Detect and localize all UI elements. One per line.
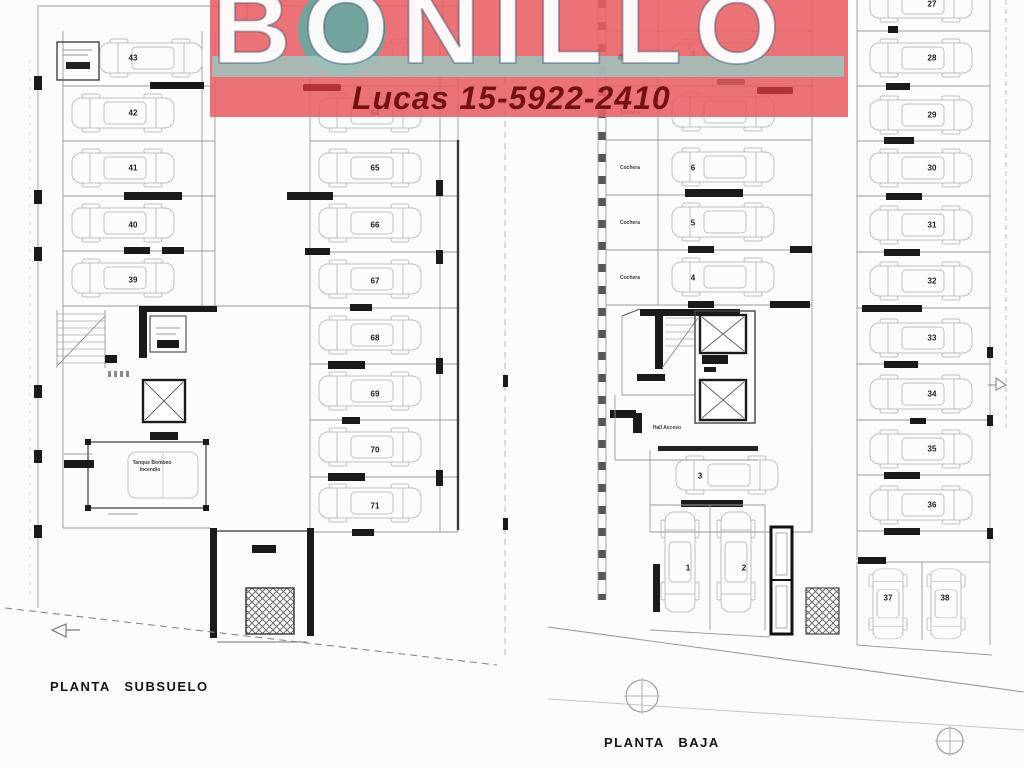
baja-elevator-icons (695, 311, 755, 423)
parking-space-number: 33 (928, 334, 937, 343)
tank-room-label: Tanque Bombeo (133, 460, 172, 466)
parking-space-number: 36 (928, 501, 937, 510)
parking-space-number: 40 (129, 221, 138, 230)
parking-space-number: 37 (884, 594, 893, 603)
parking-space-number: 30 (928, 164, 937, 173)
parking-space-number: 70 (371, 446, 380, 455)
red-dash-decoration (303, 84, 341, 91)
parking-space-number: 68 (371, 334, 380, 343)
parking-space-number: 43 (129, 54, 138, 63)
parking-space-number: 35 (928, 445, 937, 454)
red-dash-decoration (757, 87, 793, 94)
watermark-brand-text: BONILLO (212, 0, 792, 79)
survey-arrow-icon (988, 378, 1006, 390)
ramp-entry (210, 528, 314, 642)
parking-space-number: 66 (371, 221, 380, 230)
entry-door-icon (771, 527, 792, 634)
cochera-label: Cochera (620, 275, 640, 281)
service-room (150, 316, 186, 352)
parking-space-number: 65 (371, 164, 380, 173)
parking-space-number: 42 (129, 109, 138, 118)
parking-space-number: 32 (928, 277, 937, 286)
parking-space-number: 38 (941, 594, 950, 603)
meter-box (64, 454, 138, 514)
cochera-label: Cochera (620, 220, 640, 226)
parking-space-number: 1 (686, 564, 690, 573)
wall-segments (34, 76, 508, 538)
elevator-icon (143, 380, 185, 422)
vent-marks (108, 371, 129, 377)
watermark-banner: BONILLO Lucas 15-5922-2410 (210, 0, 848, 117)
parking-space-number: 6 (691, 164, 695, 173)
parking-space-number: 28 (928, 54, 937, 63)
parking-space-number: 34 (928, 390, 937, 399)
parking-space-number: 2 (742, 564, 746, 573)
parking-space-number: 31 (928, 221, 937, 230)
parking-space-number: 41 (129, 164, 138, 173)
sidewalk-lines (548, 627, 1024, 730)
watermark-contact-text: Lucas 15-5922-2410 (352, 80, 671, 117)
hall-acceso-label: Hall Acceso (653, 425, 681, 431)
survey-arrow-icon (52, 624, 80, 637)
parking-space-number: 5 (691, 219, 695, 228)
parking-space-number: 39 (129, 276, 138, 285)
parking-space-number: 3 (698, 472, 702, 481)
tank-room-label: Incendio (140, 467, 161, 473)
space3-block (650, 450, 812, 532)
parking-space-number: 29 (928, 111, 937, 120)
floorplan-image: 43 42 41 40 39 63 64 65 66 67 68 69 70 7… (0, 0, 1024, 768)
parking-space-number: 67 (371, 277, 380, 286)
parking-space-number: 27 (928, 0, 937, 9)
grille-icon (806, 588, 839, 634)
parking-space-number: 69 (371, 390, 380, 399)
parking-space-number: 4 (691, 274, 695, 283)
space12-block (650, 505, 770, 637)
baja-title: PLANTA BAJA (604, 735, 720, 750)
parking-space-number: 71 (371, 502, 380, 511)
subsuelo-title: PLANTA SUBSUELO (50, 679, 209, 694)
stairs-icon (57, 306, 217, 368)
cochera-label: Cochera (620, 165, 640, 171)
